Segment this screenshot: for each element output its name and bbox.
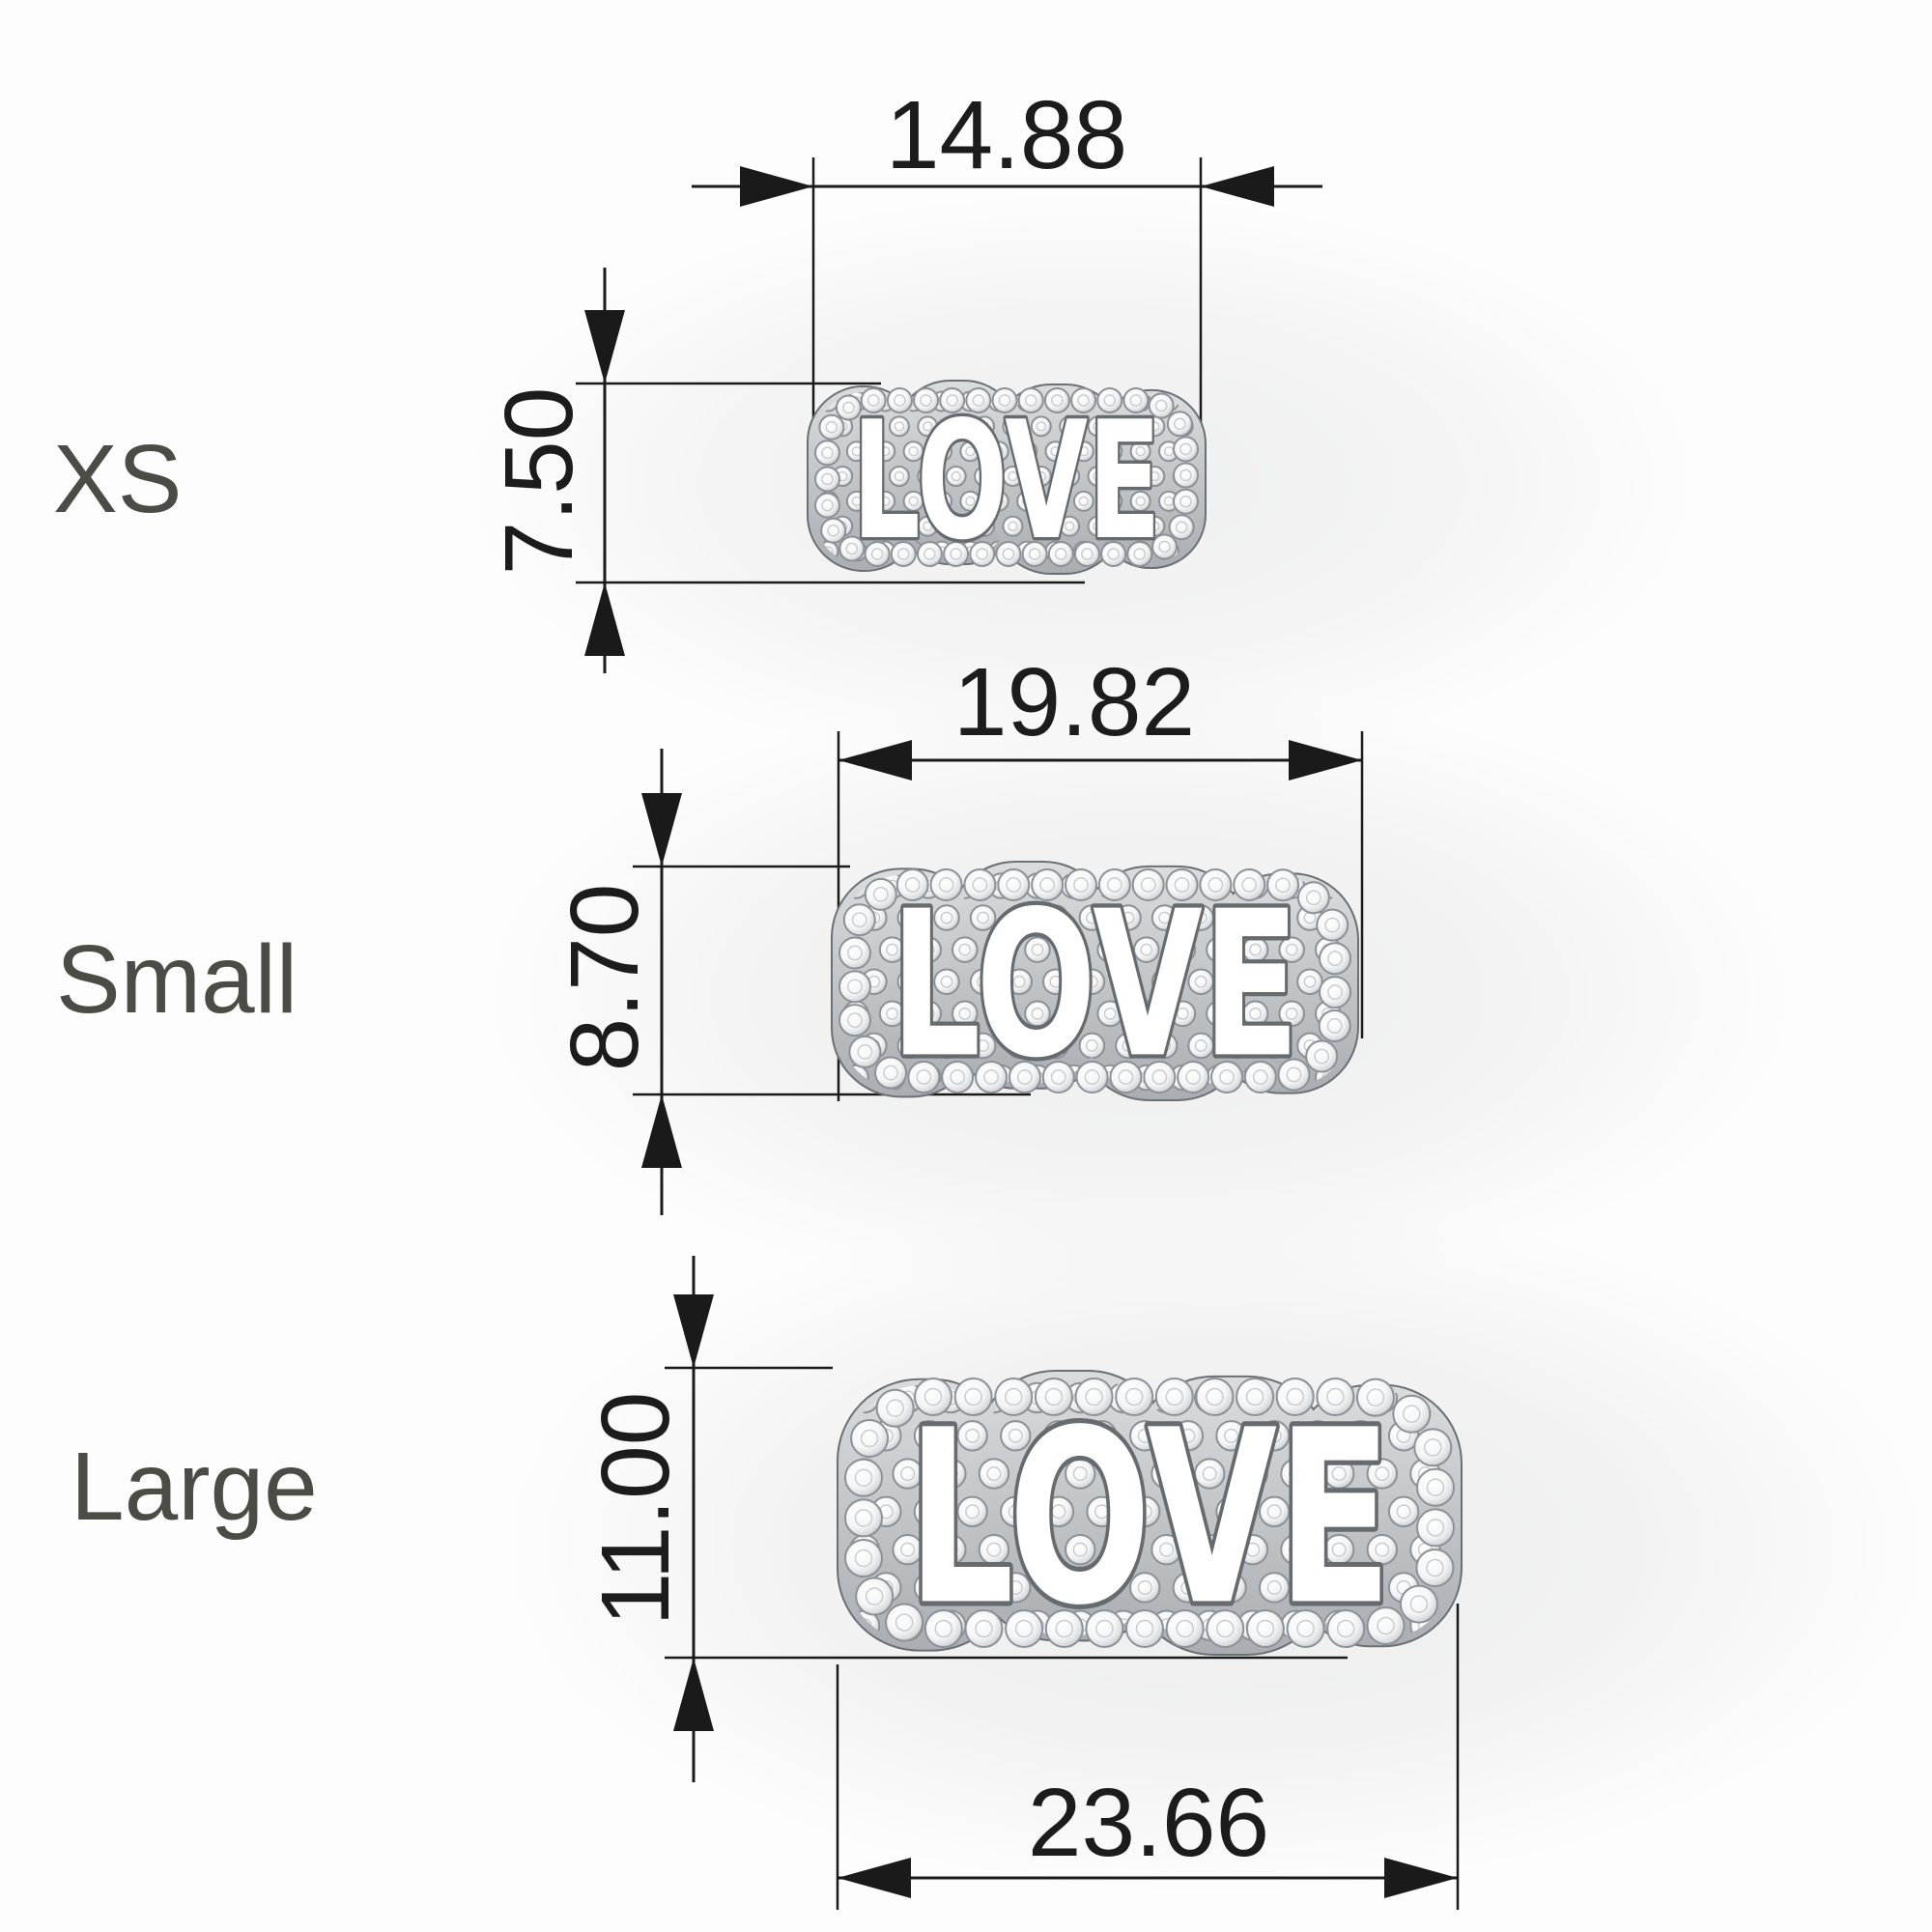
arrow-right-icon [740, 166, 813, 207]
pave-diamond [1414, 1429, 1451, 1465]
pave-diamond [1416, 1549, 1453, 1586]
size-label-small: Small [56, 925, 298, 1034]
pave-diamond [845, 1499, 882, 1536]
pave-diamond [845, 1540, 882, 1577]
pave-diamond [1320, 977, 1350, 1008]
size-label-xs: XS [53, 425, 182, 533]
pave-diamond [1401, 1586, 1437, 1623]
pave-diamond [839, 1005, 870, 1036]
size-label-large: Large [71, 1433, 318, 1541]
large-width-value: 23.66 [1028, 1769, 1269, 1877]
pave-diamond [839, 937, 870, 968]
pave-diamond [1174, 464, 1198, 488]
pave-diamond [1306, 1041, 1337, 1072]
charm-word: LOVE [852, 386, 1161, 576]
small-height-value: 8.70 [551, 884, 659, 1072]
pave-diamond [856, 1578, 893, 1615]
pave-diamond [815, 467, 839, 491]
pave-diamond [1417, 1469, 1454, 1506]
pave-diamond [1297, 969, 1322, 994]
pave-diamond [845, 1460, 882, 1496]
pave-diamond [1320, 943, 1350, 974]
pave-diamond [1168, 412, 1192, 436]
pave-diamond [1174, 490, 1198, 514]
pave-diamond [1298, 882, 1329, 913]
pave-diamond [851, 1420, 888, 1457]
small-width-value: 19.82 [953, 648, 1195, 756]
pave-diamond [849, 1037, 880, 1067]
pave-diamond [821, 519, 845, 543]
charm-large: LOVE [838, 1372, 1461, 1658]
large-height-value: 11.00 [582, 1392, 690, 1627]
charm-word: LOVE [891, 868, 1300, 1102]
pave-diamond [815, 440, 839, 465]
pave-diamond [819, 415, 843, 440]
size-comparison-diagram: 14.88 7.50 19.82 8.70 11.00 [0, 0, 1932, 1932]
pave-diamond [1417, 1509, 1454, 1546]
charm-xs: LOVE [809, 382, 1205, 576]
pave-diamond [1393, 1396, 1430, 1433]
pave-diamond [839, 971, 870, 1002]
pave-diamond [815, 494, 839, 518]
xs-width-value: 14.88 [886, 81, 1127, 189]
charm-word: LOVE [907, 1378, 1392, 1658]
xs-height-value: 7.50 [485, 387, 593, 576]
pave-diamond [844, 904, 875, 935]
charm-small: LOVE [833, 863, 1357, 1102]
pave-diamond [1320, 1010, 1350, 1041]
diagram-svg: 14.88 7.50 19.82 8.70 11.00 [0, 0, 1932, 1932]
pave-diamond [1389, 1497, 1418, 1526]
arrow-left-icon [838, 1858, 911, 1898]
pave-diamond [1170, 515, 1194, 539]
pave-diamond [1174, 437, 1198, 461]
pave-diamond [1317, 910, 1348, 941]
